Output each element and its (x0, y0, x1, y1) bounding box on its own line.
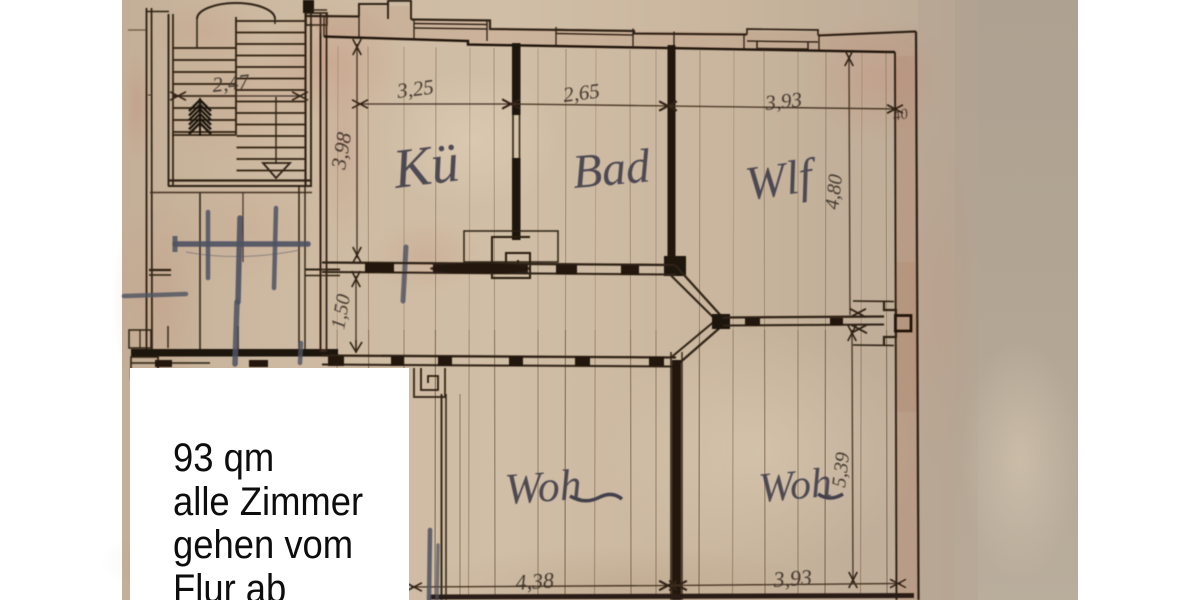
svg-text:2,47: 2,47 (211, 69, 252, 97)
svg-text:4,38: 4,38 (515, 567, 555, 595)
svg-text:Kü: Kü (389, 131, 462, 201)
svg-text:4,80: 4,80 (821, 173, 847, 210)
svg-text:5,39: 5,39 (828, 451, 854, 488)
svg-text:3,93: 3,93 (772, 564, 813, 592)
svg-text:Woh: Woh (503, 460, 583, 514)
svg-text:Wlf: Wlf (742, 148, 821, 211)
svg-text:Woh: Woh (757, 460, 834, 512)
svg-text:2,65: 2,65 (562, 79, 601, 107)
svg-text:Bad: Bad (570, 139, 653, 199)
svg-text:3,25: 3,25 (395, 75, 435, 103)
svg-text:3,93: 3,93 (763, 87, 803, 115)
